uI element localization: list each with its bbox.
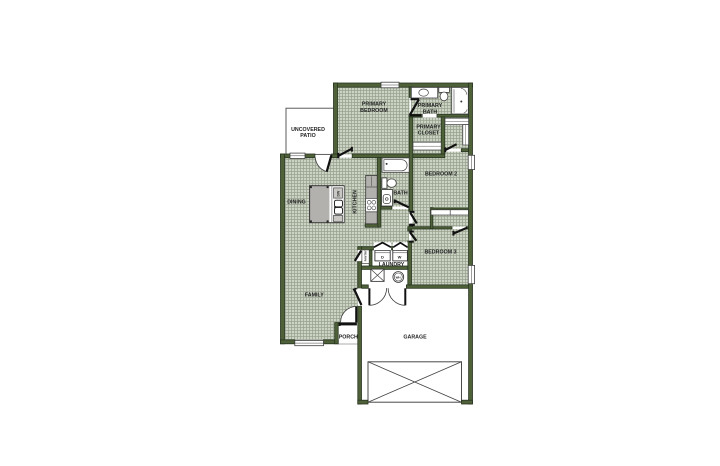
svg-text:PATIO: PATIO [300,133,315,139]
svg-text:KITCHEN: KITCHEN [352,190,358,214]
svg-text:FAMILY: FAMILY [305,293,324,299]
svg-text:PANTRY: PANTRY [364,250,368,261]
svg-text:PRIMARY: PRIMARY [418,103,443,109]
svg-text:DINING: DINING [287,199,306,205]
svg-text:BEDROOM 3: BEDROOM 3 [424,250,456,256]
svg-text:UNCOVERED: UNCOVERED [291,127,325,133]
svg-text:PRIMARY: PRIMARY [362,102,387,108]
svg-text:D: D [381,255,384,260]
svg-text:LAUNDRY: LAUNDRY [379,262,405,268]
svg-text:BATH: BATH [393,191,407,197]
svg-text:WH: WH [396,275,401,279]
svg-text:PORCH: PORCH [339,334,358,340]
svg-text:PRIMARY: PRIMARY [416,124,441,130]
svg-text:GARAGE: GARAGE [403,335,427,341]
svg-text:CLOSET: CLOSET [418,131,440,137]
svg-text:BATH: BATH [423,109,437,115]
svg-text:W: W [398,255,402,260]
svg-text:DW: DW [337,190,341,196]
svg-text:BEDROOM: BEDROOM [360,108,388,114]
svg-text:BEDROOM 2: BEDROOM 2 [425,171,457,177]
